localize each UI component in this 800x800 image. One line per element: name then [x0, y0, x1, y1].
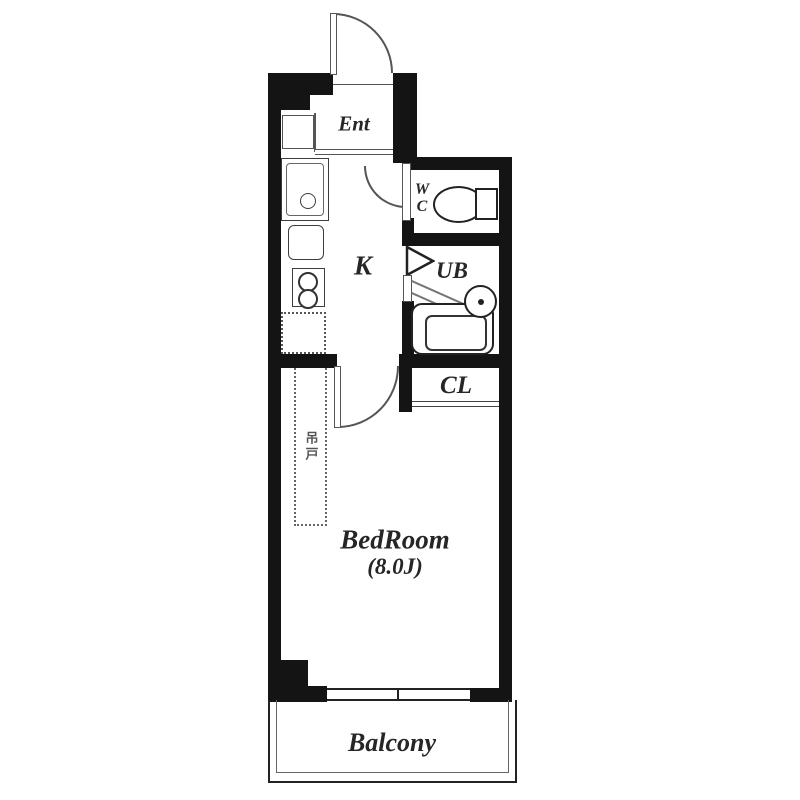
shoe-cabinet-box: [282, 115, 314, 149]
closet-label: CL: [440, 372, 472, 400]
wall-wc-top: [405, 157, 512, 170]
wc-label-top: W: [415, 181, 429, 199]
wc-door-arc: [364, 166, 406, 208]
entrance-door-leaf: [330, 13, 337, 75]
bedroom-door-leaf: [334, 366, 341, 428]
genkan-step-line: [315, 149, 393, 155]
ub-door-panel: [403, 275, 412, 302]
bedroom-size-label: (8.0J): [367, 554, 423, 580]
wall-ub-closet-divider: [399, 354, 512, 368]
ub-folding-door-icon: [405, 245, 435, 277]
kitchen-label: K: [354, 251, 372, 282]
wc-door-leaf: [402, 163, 411, 221]
bedroom-label: BedRoom: [340, 525, 450, 556]
wall-left: [268, 73, 281, 702]
wall-kitchen-bedroom: [268, 354, 337, 368]
entrance-door-arc: [333, 13, 393, 73]
refrigerator-space: [281, 312, 326, 354]
wall-pillar-bottom-left-upper: [268, 660, 308, 688]
toilet-tank: [475, 188, 498, 220]
hanging-door-label: 吊戸: [302, 431, 321, 463]
wash-basin-drain-icon: [478, 299, 484, 305]
wall-top: [281, 73, 333, 95]
entrance-threshold-line: [333, 84, 393, 86]
closet-front-line: [412, 401, 499, 407]
bedroom-door-arc: [338, 366, 399, 428]
stove-burner-bottom: [298, 289, 318, 309]
genkan-edge-line: [314, 113, 316, 152]
unit-bath-label: UB: [436, 258, 468, 284]
floorplan-canvas: Ent K W C UB CL BedRoom (8.0J) Balcony 吊…: [0, 0, 800, 800]
wall-closet-left: [399, 354, 412, 412]
bathtub-inner: [425, 315, 487, 351]
wall-entrance-right-pillar: [393, 73, 417, 163]
kitchen-counter: [288, 225, 324, 260]
balcony-label: Balcony: [348, 728, 436, 758]
wc-label-bottom: C: [417, 198, 428, 216]
sink-drain-icon: [300, 193, 316, 209]
entrance-label: Ent: [338, 112, 370, 137]
